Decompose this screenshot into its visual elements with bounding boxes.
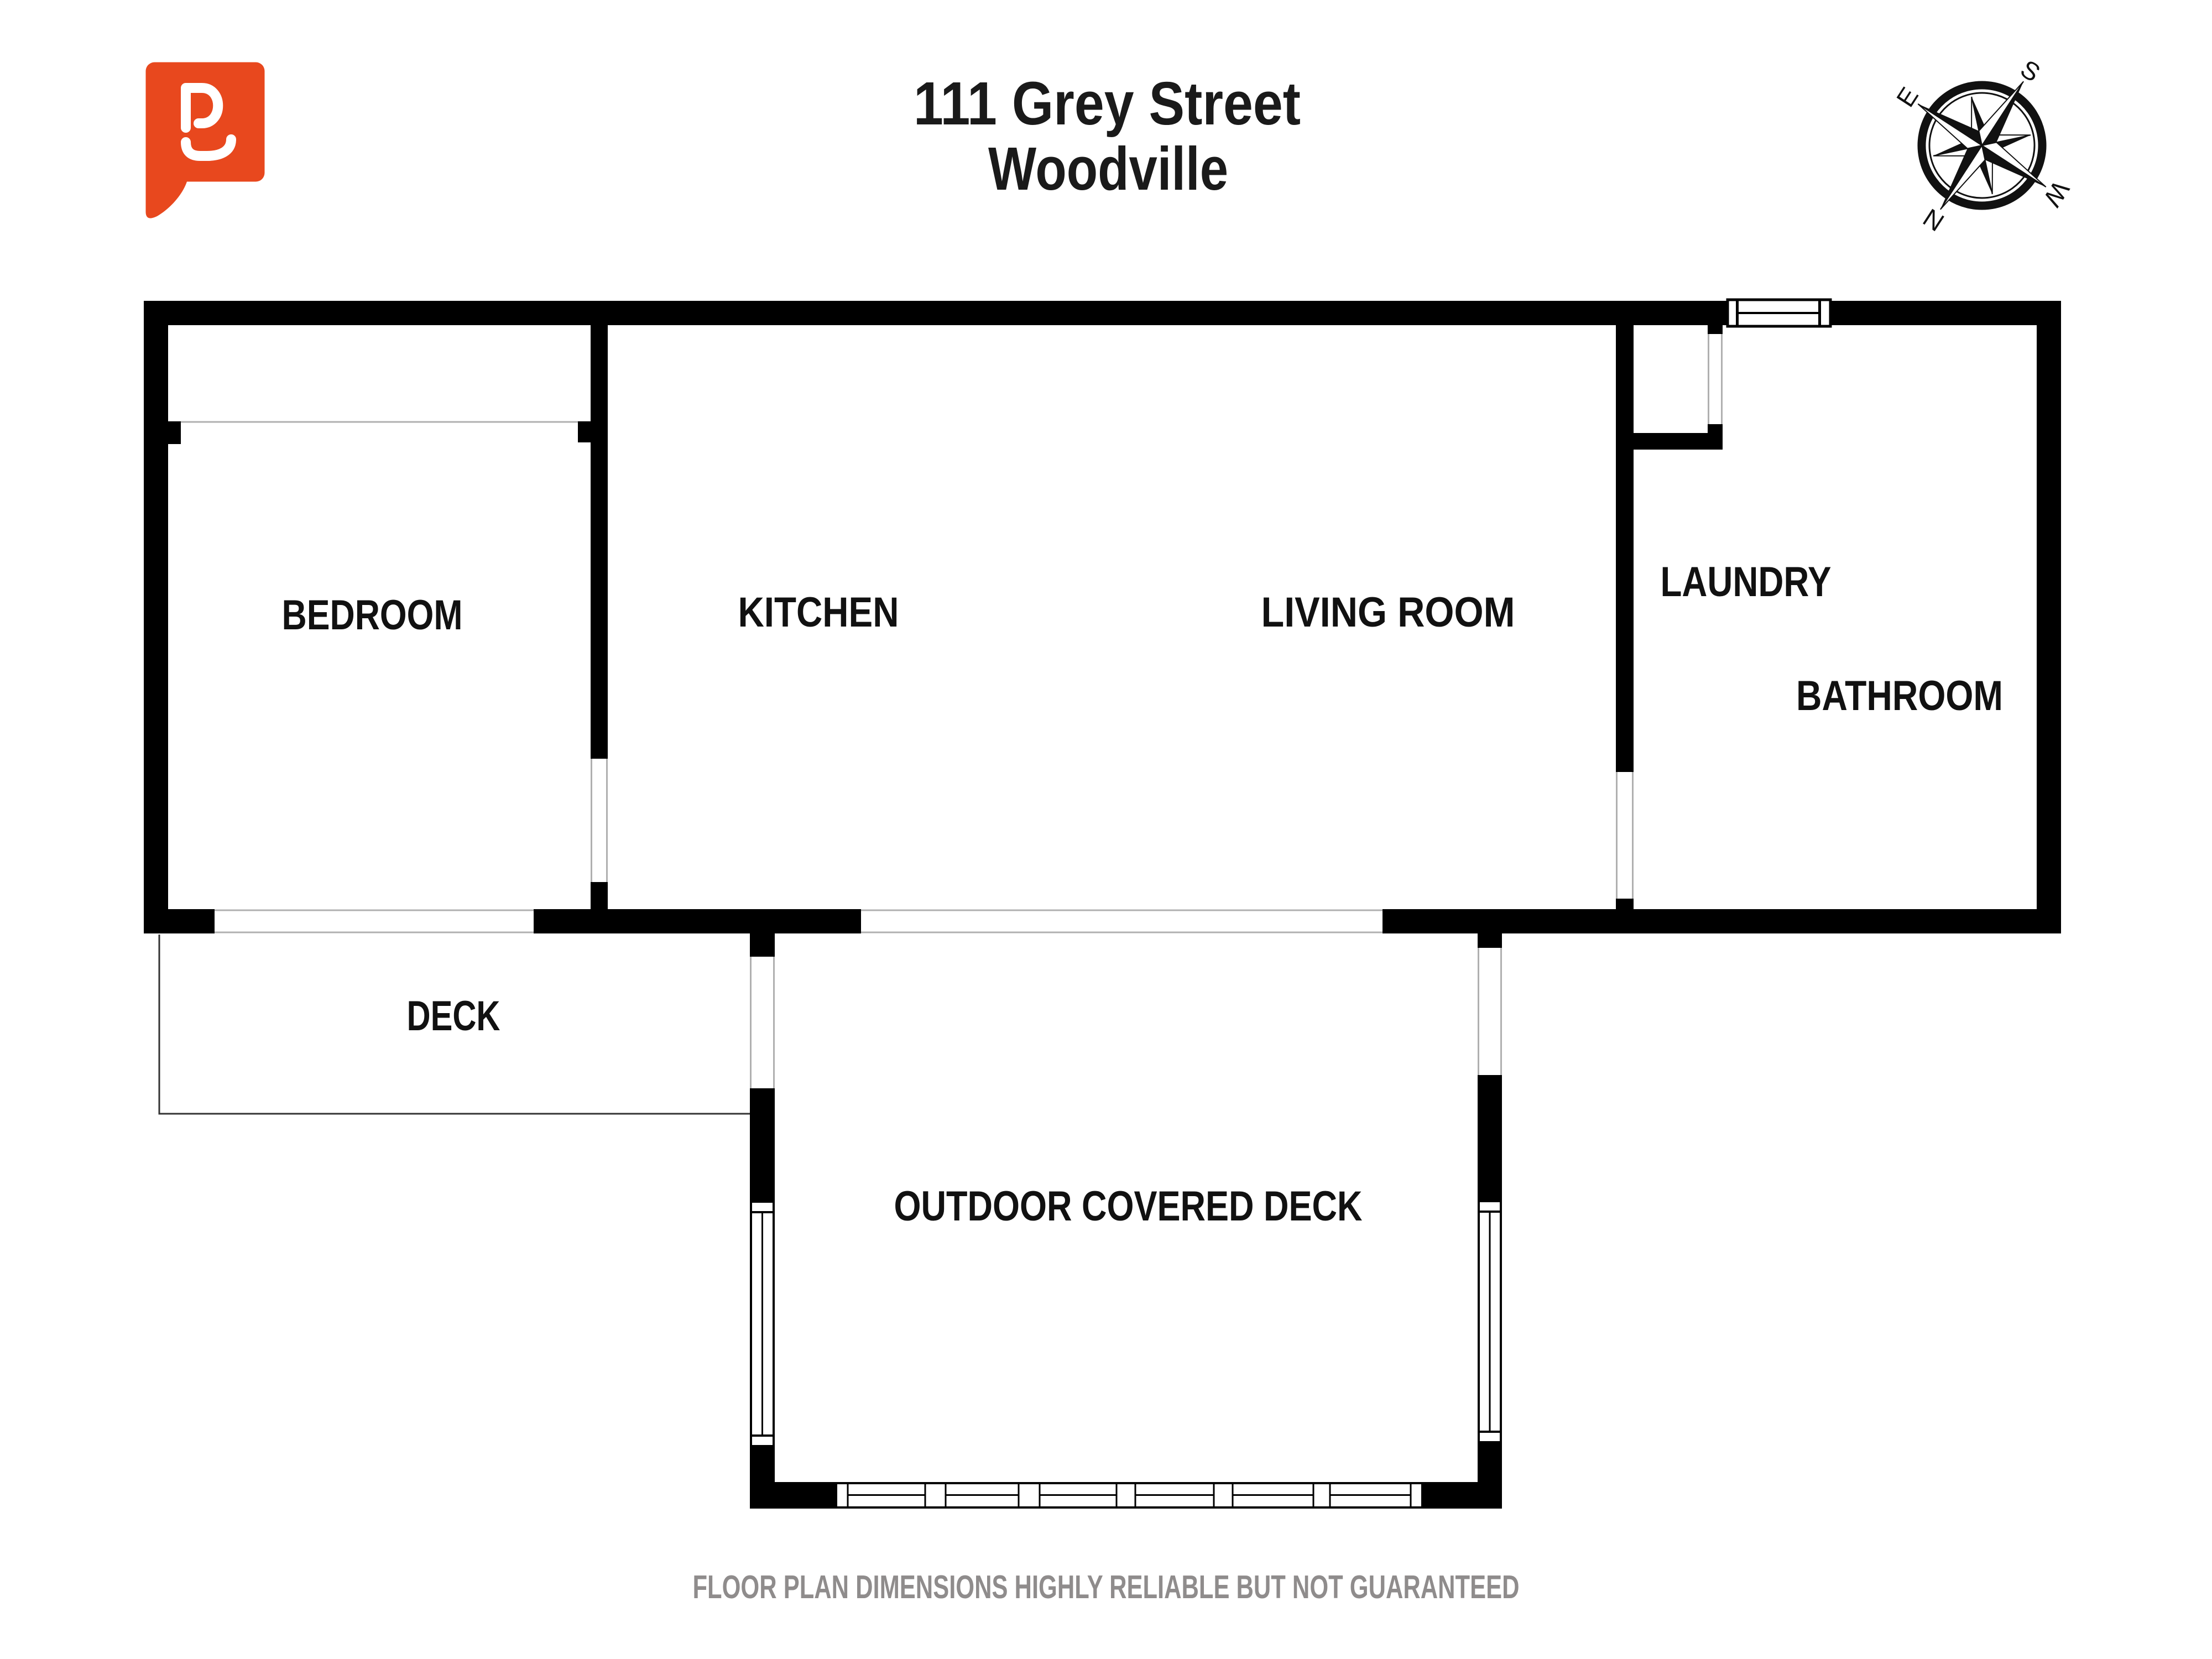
svg-text:LIVING ROOM: LIVING ROOM bbox=[1261, 589, 1515, 636]
svg-text:DECK: DECK bbox=[407, 993, 500, 1040]
svg-text:BATHROOM: BATHROOM bbox=[1796, 672, 2003, 719]
svg-text:111 Grey Street: 111 Grey Street bbox=[914, 70, 1301, 138]
svg-text:BEDROOM: BEDROOM bbox=[282, 592, 463, 639]
svg-text:Woodville: Woodville bbox=[988, 135, 1228, 203]
svg-text:FLOOR PLAN DIMENSIONS HIGHLY R: FLOOR PLAN DIMENSIONS HIGHLY RELIABLE BU… bbox=[693, 1569, 1520, 1605]
svg-text:OUTDOOR COVERED DECK: OUTDOOR COVERED DECK bbox=[894, 1183, 1363, 1230]
svg-text:KITCHEN: KITCHEN bbox=[738, 589, 899, 636]
svg-text:LAUNDRY: LAUNDRY bbox=[1661, 559, 1832, 606]
